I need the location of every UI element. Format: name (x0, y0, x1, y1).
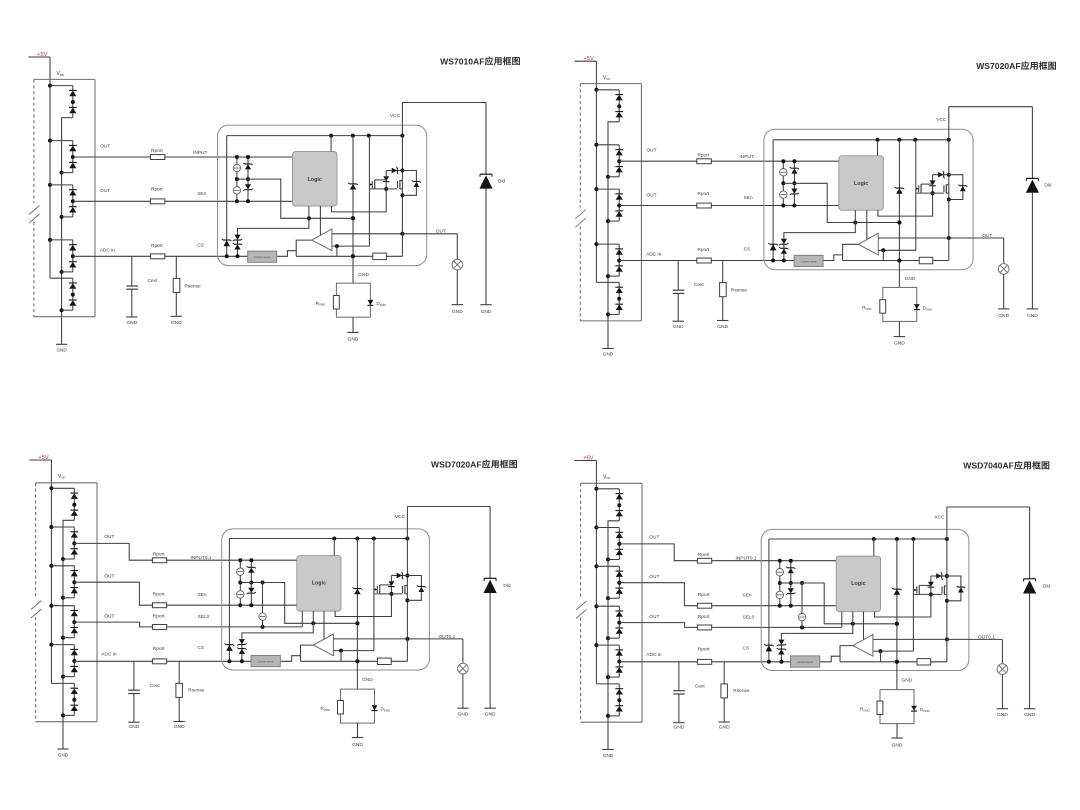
svg-text:SEL0: SEL0 (743, 614, 755, 620)
svg-text:GND: GND (171, 320, 182, 326)
svg-text:WS7020AF: WS7020AF (976, 61, 1020, 71)
svg-text:OUT: OUT (104, 614, 114, 620)
svg-text:Rsense: Rsense (188, 688, 205, 694)
svg-text:OUT: OUT (100, 144, 110, 150)
svg-text:GND: GND (1024, 712, 1035, 718)
svg-text:CS: CS (743, 646, 750, 652)
svg-text:Current sense: Current sense (800, 259, 817, 263)
svg-text:Rport: Rport (697, 191, 709, 197)
svg-text:GND: GND (905, 276, 916, 282)
svg-text:OUT: OUT (100, 188, 110, 194)
svg-text:Cext: Cext (695, 684, 706, 690)
svg-text:Logic: Logic (851, 581, 865, 587)
svg-text:Rsense: Rsense (184, 283, 201, 289)
svg-text:Rport: Rport (151, 148, 163, 154)
svg-text:Rport: Rport (698, 592, 710, 598)
svg-text:SEL0: SEL0 (198, 614, 210, 620)
svg-text:OUT0,1: OUT0,1 (439, 634, 456, 640)
svg-text:GND: GND (126, 320, 137, 326)
svg-text:GND: GND (362, 677, 373, 683)
svg-text:Rport: Rport (697, 152, 709, 158)
svg-text:Dld: Dld (503, 583, 511, 589)
svg-text:+5V: +5V (37, 52, 48, 58)
svg-text:VCC: VCC (936, 117, 947, 123)
svg-text:GND: GND (128, 724, 139, 730)
svg-text:ADC in: ADC in (100, 248, 116, 254)
svg-text:Rport: Rport (698, 552, 710, 558)
svg-text:GND: GND (998, 313, 1009, 319)
svg-text:GND: GND (892, 743, 903, 749)
svg-text:OUT: OUT (982, 233, 992, 239)
svg-text:OUT: OUT (649, 574, 659, 580)
svg-text:SEn: SEn (197, 191, 206, 197)
svg-text:WSD7020AF: WSD7020AF (431, 459, 482, 469)
svg-text:Rport: Rport (151, 243, 163, 249)
svg-text:GND: GND (56, 347, 67, 352)
svg-text:Cext: Cext (694, 282, 705, 288)
svg-text:SEn: SEn (743, 593, 752, 599)
svg-text:GND: GND (481, 309, 492, 315)
svg-text:Current sense: Current sense (254, 255, 271, 259)
svg-text:Rport: Rport (153, 591, 165, 597)
svg-text:INPUT: INPUT (739, 154, 753, 160)
svg-text:WS7010AF: WS7010AF (440, 56, 484, 66)
svg-text:INPUT: INPUT (193, 150, 207, 156)
svg-text:GND: GND (894, 341, 905, 347)
svg-text:INPUT0,1: INPUT0,1 (191, 555, 212, 561)
svg-text:GND: GND (452, 309, 463, 315)
svg-text:GND: GND (717, 324, 728, 330)
svg-text:Dld: Dld (1044, 183, 1052, 189)
svg-text:OUT: OUT (649, 535, 659, 541)
svg-text:OUT: OUT (649, 614, 659, 620)
svg-text:GND: GND (348, 337, 359, 343)
svg-text:GND: GND (902, 678, 913, 684)
svg-text:Rport: Rport (153, 613, 165, 619)
svg-text:SEn: SEn (198, 592, 207, 598)
svg-text:GND: GND (719, 724, 730, 730)
svg-text:OUT: OUT (104, 534, 114, 540)
svg-text:+5V: +5V (583, 456, 594, 462)
svg-text:CS: CS (744, 247, 751, 253)
svg-text:OUT: OUT (646, 148, 656, 154)
svg-text:GND: GND (1027, 313, 1038, 319)
svg-text:OUT: OUT (646, 192, 656, 198)
svg-text:GND: GND (457, 711, 468, 717)
svg-text:Rsense: Rsense (731, 288, 748, 294)
svg-text:GND: GND (174, 724, 185, 730)
svg-text:ADC in: ADC in (646, 652, 662, 658)
svg-text:GND: GND (58, 752, 69, 757)
svg-text:GND: GND (673, 724, 684, 730)
svg-text:INPUT0,1: INPUT0,1 (736, 556, 757, 562)
svg-text:Dld: Dld (498, 178, 506, 184)
svg-text:Logic: Logic (854, 181, 868, 187)
svg-text:+5V: +5V (583, 56, 594, 62)
svg-text:ADC in: ADC in (646, 252, 662, 258)
svg-text:Rport: Rport (698, 646, 710, 652)
svg-text:+5V: +5V (38, 455, 49, 461)
svg-text:Rport: Rport (153, 646, 165, 652)
svg-text:ADC in: ADC in (101, 651, 117, 657)
svg-text:Dld: Dld (1043, 584, 1051, 590)
svg-text:GND: GND (485, 711, 496, 717)
svg-text:VCC: VCC (390, 113, 401, 119)
svg-text:Rsense: Rsense (733, 688, 750, 694)
svg-text:Rport: Rport (153, 552, 165, 558)
svg-text:Rport: Rport (151, 187, 163, 193)
svg-text:Rport: Rport (698, 614, 710, 620)
svg-text:SEn: SEn (744, 195, 753, 201)
svg-text:WSD7040AF: WSD7040AF (963, 461, 1014, 471)
svg-text:CS: CS (197, 242, 204, 248)
svg-text:CS: CS (198, 645, 205, 651)
svg-text:Current sense: Current sense (797, 660, 814, 664)
svg-text:GND: GND (358, 272, 369, 278)
svg-text:Current sense: Current sense (257, 660, 274, 664)
svg-text:Rport: Rport (697, 247, 709, 253)
svg-text:Logic: Logic (308, 177, 322, 183)
svg-text:Cext: Cext (148, 278, 159, 284)
svg-text:Logic: Logic (312, 581, 326, 587)
svg-text:VCC: VCC (395, 514, 406, 520)
svg-text:GND: GND (997, 712, 1008, 718)
svg-text:GND: GND (603, 352, 614, 357)
svg-text:VCC: VCC (934, 515, 945, 521)
svg-text:OUT0,1: OUT0,1 (978, 635, 995, 641)
svg-text:OUT: OUT (104, 574, 114, 580)
svg-text:GND: GND (352, 742, 363, 748)
svg-text:GND: GND (603, 753, 614, 758)
svg-text:Cext: Cext (150, 683, 161, 689)
svg-text:OUT: OUT (436, 229, 446, 235)
svg-text:GND: GND (673, 324, 684, 330)
